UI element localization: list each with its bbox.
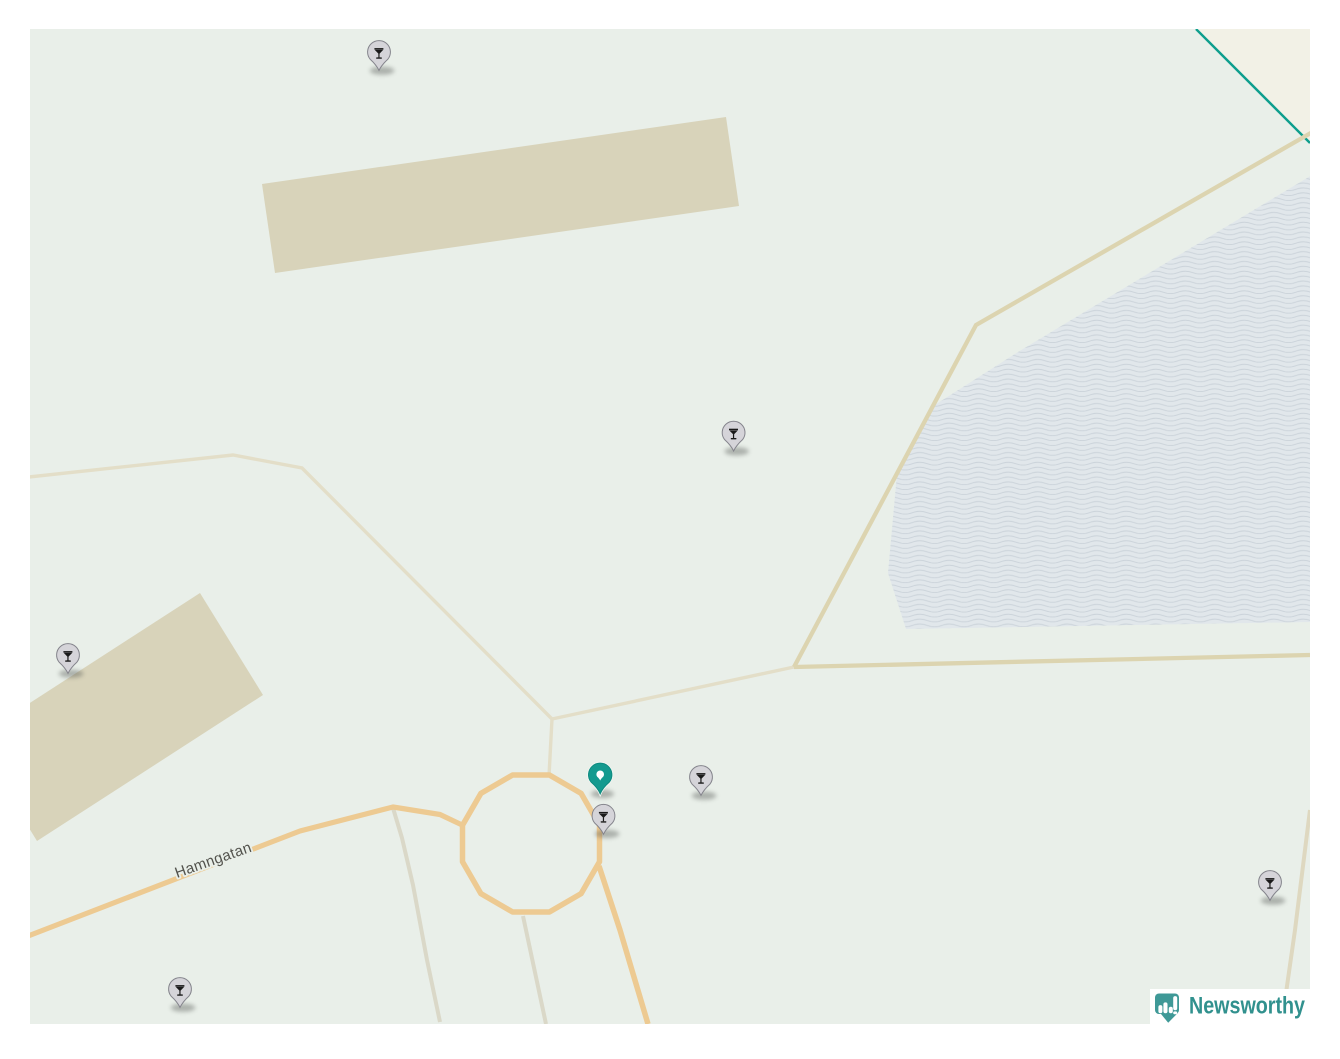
- svg-text:Newsworthy: Newsworthy: [1189, 993, 1306, 1020]
